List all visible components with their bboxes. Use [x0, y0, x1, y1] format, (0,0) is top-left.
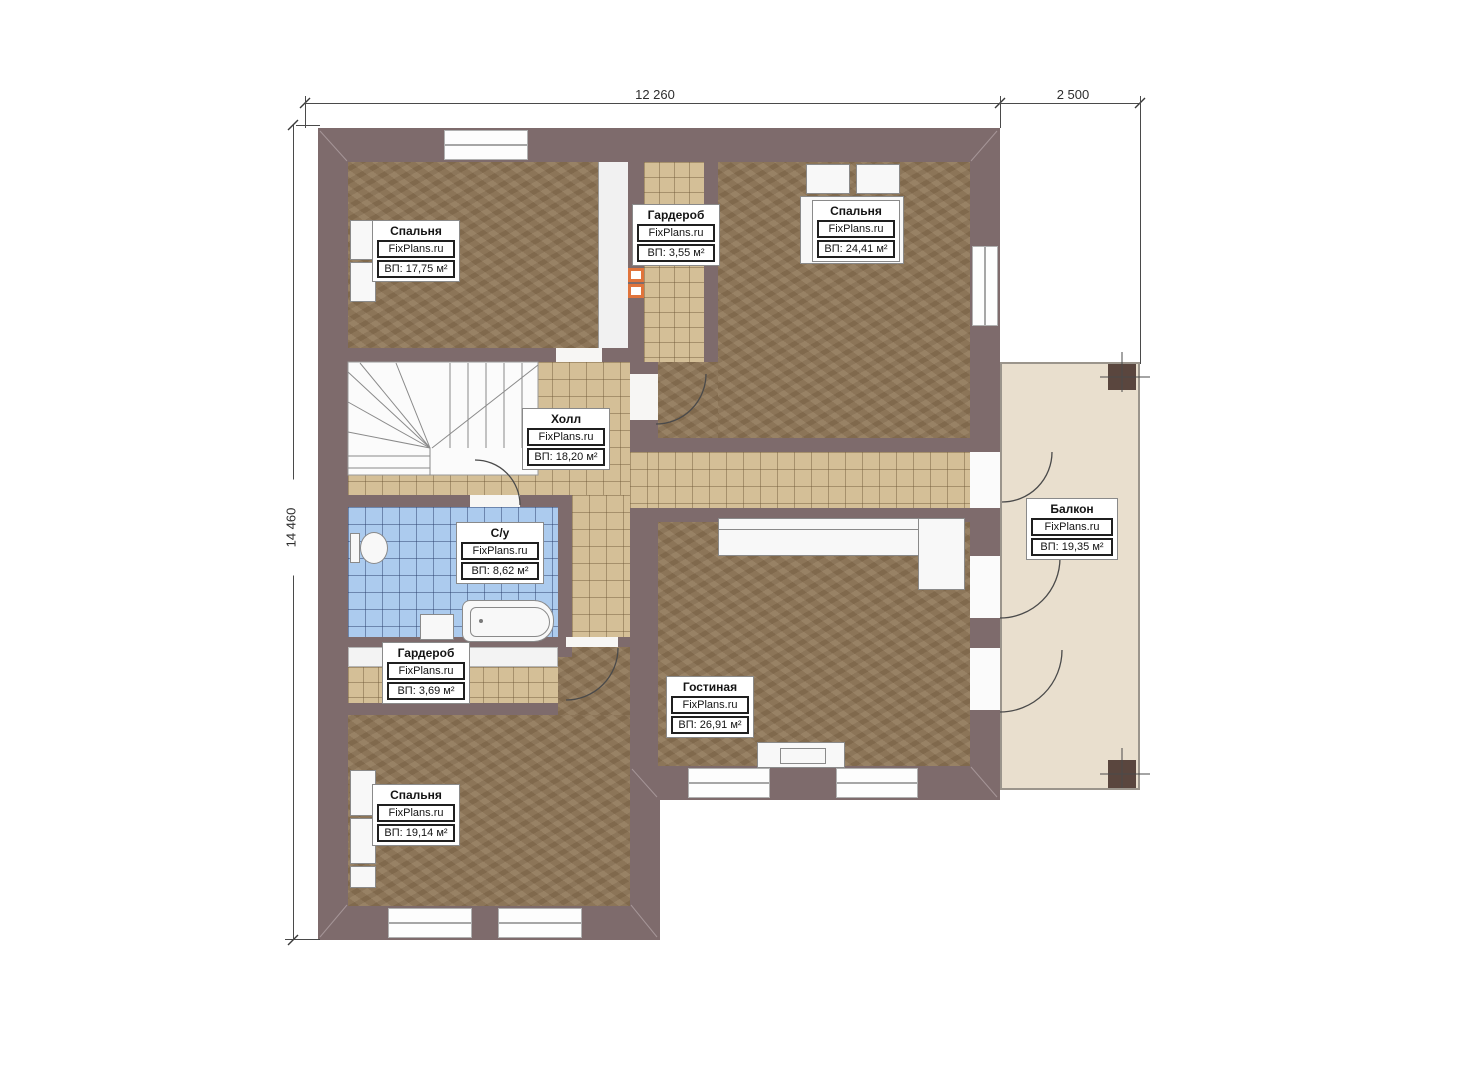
nightstand-bedroomBL: [350, 866, 376, 888]
door-living-balcony-2: [970, 648, 1000, 710]
tv-cabinet: [757, 742, 845, 768]
room-label-bathroom: С/у FixPlans.ru ВП: 8,62 м²: [456, 522, 544, 584]
shaft-marker-2: [628, 284, 644, 298]
balcony-post-top: [1108, 364, 1136, 390]
shaft-marker-1: [628, 268, 644, 282]
floor-plan: 12 260 2 500 14 460 Спальня FixPlans.ru …: [0, 0, 1473, 1080]
brand-link: FixPlans.ru: [671, 696, 749, 714]
window-bedroomBL-2: [498, 908, 582, 938]
window-right-bedroomTR: [972, 246, 998, 326]
wall-bathroom-east: [558, 495, 572, 657]
toilet-bowl: [360, 532, 388, 564]
brand-link: FixPlans.ru: [377, 240, 455, 258]
door-opening-bathroom: [470, 495, 520, 507]
dimension-label-height: 14 460: [284, 480, 299, 576]
room-label-hall: Холл FixPlans.ru ВП: 18,20 м²: [522, 408, 610, 470]
room-name: Гостиная: [671, 680, 749, 694]
floor-corridor: [658, 452, 970, 508]
toilet-tank: [350, 533, 360, 563]
wall-living-west: [630, 508, 658, 766]
door-opening-bedroomTL: [556, 348, 602, 362]
wall-exterior-left: [318, 128, 348, 940]
room-name: Спальня: [377, 788, 455, 802]
brand-link: FixPlans.ru: [377, 804, 455, 822]
bed-pillow-1: [806, 164, 850, 194]
room-label-wardrobe-top: Гардероб FixPlans.ru ВП: 3,55 м²: [632, 204, 720, 266]
brand-link: FixPlans.ru: [637, 224, 715, 242]
brand-link: FixPlans.ru: [387, 662, 465, 680]
floor-hall-strip: [572, 495, 630, 637]
brand-link: FixPlans.ru: [817, 220, 895, 238]
extension-line-3: [1140, 96, 1141, 364]
room-label-bedroom-top-left: Спальня FixPlans.ru ВП: 17,75 м²: [372, 220, 460, 282]
door-living-balcony-1: [970, 556, 1000, 618]
window-bedroomBL-1: [388, 908, 472, 938]
room-area: ВП: 19,35 м²: [1031, 538, 1113, 556]
closet-strip: [598, 162, 628, 348]
room-area: ВП: 26,91 м²: [671, 716, 749, 734]
brand-link: FixPlans.ru: [527, 428, 605, 446]
window-top: [444, 130, 528, 160]
sofa-chaise: [918, 518, 965, 590]
wall-wardrobeBottom-south: [348, 703, 558, 715]
room-area: ВП: 8,62 м²: [461, 562, 539, 580]
room-label-bedroom-bottom: Спальня FixPlans.ru ВП: 19,14 м²: [372, 784, 460, 846]
room-name: Гардероб: [387, 646, 465, 660]
bed-pillow-2: [856, 164, 900, 194]
floor-balcony: [1000, 362, 1140, 790]
wall-exterior-bottom-living: [630, 766, 1000, 800]
sink: [420, 614, 454, 640]
wall-exterior-bottom-left: [318, 906, 660, 940]
room-label-bedroom-top-right: Спальня FixPlans.ru ВП: 24,41 м²: [812, 200, 900, 262]
room-name: С/у: [461, 526, 539, 540]
dimension-line-top-balcony: [1000, 103, 1140, 104]
extension-line-1: [305, 96, 306, 128]
room-area: ВП: 3,55 м²: [637, 244, 715, 262]
door-opening-bedroomTR: [630, 374, 658, 420]
room-name: Спальня: [817, 204, 895, 218]
window-living-bottom-2: [836, 768, 918, 798]
floor-bedroom-bottom-ext: [558, 647, 630, 715]
brand-link: FixPlans.ru: [461, 542, 539, 560]
door-opening-bedroomBL: [566, 637, 618, 647]
room-name: Холл: [527, 412, 605, 426]
floor-bedroom-top-right-ext: [658, 362, 718, 438]
room-area: ВП: 17,75 м²: [377, 260, 455, 278]
window-living-bottom-1: [688, 768, 770, 798]
room-area: ВП: 24,41 м²: [817, 240, 895, 258]
dimension-line-top-main: [305, 103, 1000, 104]
room-area: ВП: 3,69 м²: [387, 682, 465, 700]
room-name: Балкон: [1031, 502, 1113, 516]
dimension-label-width-balcony: 2 500: [1028, 87, 1118, 102]
dimension-label-width-main: 12 260: [597, 87, 713, 102]
room-area: ВП: 19,14 м²: [377, 824, 455, 842]
bathtub: [462, 600, 554, 642]
room-label-wardrobe-bottom: Гардероб FixPlans.ru ВП: 3,69 м²: [382, 642, 470, 704]
extension-line-2: [1000, 96, 1001, 128]
room-label-living-room: Гостиная FixPlans.ru ВП: 26,91 м²: [666, 676, 754, 738]
balcony-post-bottom: [1108, 760, 1136, 788]
brand-link: FixPlans.ru: [1031, 518, 1113, 536]
extension-line-5: [285, 939, 320, 940]
floor-hall-connector: [630, 452, 658, 508]
wall-corridor-north: [658, 438, 970, 452]
door-corridor-balcony: [970, 452, 1000, 508]
wall-bathroom-north: [348, 495, 572, 507]
wall-exterior-top: [318, 128, 1000, 162]
room-name: Гардероб: [637, 208, 715, 222]
extension-line-4: [296, 125, 320, 126]
room-label-balcony: Балкон FixPlans.ru ВП: 19,35 м²: [1026, 498, 1118, 560]
room-area: ВП: 18,20 м²: [527, 448, 605, 466]
room-name: Спальня: [377, 224, 455, 238]
